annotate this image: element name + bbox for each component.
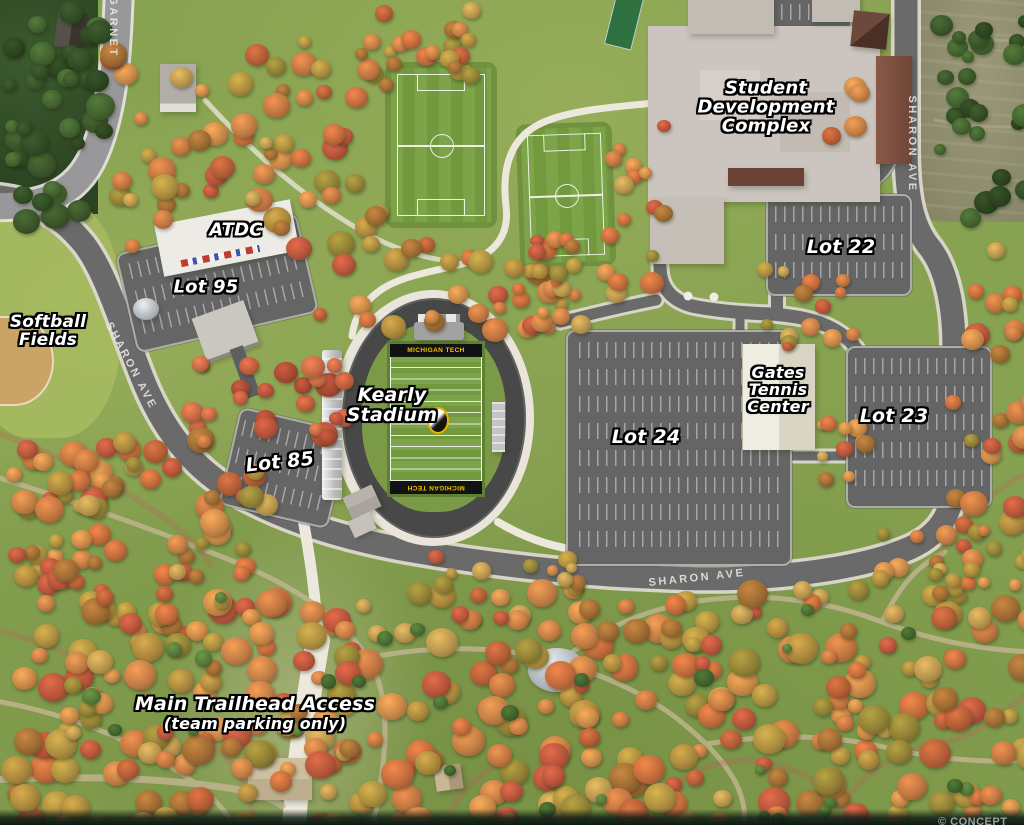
water-dome (133, 298, 159, 320)
tree (102, 479, 122, 498)
tree (501, 705, 519, 721)
label-lot-24[interactable]: Lot 24 (612, 428, 681, 448)
tree (813, 767, 843, 794)
tree (958, 68, 976, 85)
tree (425, 45, 441, 59)
tree (507, 610, 529, 630)
tree (301, 356, 325, 378)
tree (401, 30, 421, 49)
tree (564, 239, 580, 254)
road-label-garnet: GARNET (107, 0, 119, 58)
endzone-north: MICHIGAN TECH (390, 344, 482, 357)
label-student-development-complex[interactable]: Student Development Complex (697, 80, 834, 137)
tree (901, 627, 916, 641)
tree (169, 564, 186, 580)
label-softball-fields[interactable]: Softball Fields (10, 314, 86, 350)
tree (381, 759, 414, 789)
label-text: Lot 95 (174, 277, 239, 298)
tree (204, 490, 221, 505)
building-sdc-brown-strip (728, 168, 804, 186)
tree (428, 550, 443, 564)
tree (8, 547, 26, 563)
tree (297, 622, 328, 650)
tree (13, 209, 40, 234)
tree (504, 259, 524, 277)
label-lot-22[interactable]: Lot 22 (807, 238, 876, 258)
tree (3, 37, 26, 58)
tree (47, 471, 73, 495)
tree (320, 784, 338, 800)
tree (293, 651, 315, 671)
tree (574, 673, 589, 687)
tree (576, 707, 599, 728)
tree (527, 579, 558, 607)
tree (793, 581, 812, 599)
tree (960, 208, 982, 228)
tree (377, 631, 393, 646)
tree (2, 78, 18, 93)
tree (167, 535, 189, 555)
tree (737, 580, 768, 608)
tree (991, 595, 1020, 622)
tree (937, 70, 953, 85)
tree (538, 699, 554, 714)
tree (944, 649, 966, 669)
tree (316, 85, 332, 100)
tree (32, 193, 52, 212)
tree (962, 51, 975, 63)
tree (491, 589, 510, 606)
tree (71, 137, 85, 150)
tree (601, 227, 619, 244)
campus-map[interactable]: MICHIGAN TECH MICHIGAN TECH Student Deve… (0, 0, 1024, 825)
tree (757, 262, 773, 277)
parking-stall-row (855, 358, 983, 374)
tree (990, 345, 1010, 363)
tree (49, 534, 64, 547)
tree (782, 342, 792, 352)
tree (82, 688, 101, 705)
tree (377, 693, 407, 720)
tree (327, 231, 355, 256)
tree (231, 113, 258, 137)
tree (1005, 326, 1021, 341)
tree (657, 120, 671, 133)
tree (59, 1, 84, 24)
tree (952, 118, 971, 136)
tree (300, 601, 325, 624)
tree (433, 576, 453, 594)
tree (296, 395, 315, 412)
tree (80, 740, 101, 759)
tree (422, 671, 451, 698)
tree (140, 469, 162, 489)
tree (358, 781, 387, 808)
parking-stall-row (855, 470, 983, 486)
tree (960, 491, 988, 517)
tree (836, 274, 850, 287)
tree (296, 90, 313, 106)
tree (215, 592, 227, 603)
tree (1003, 496, 1024, 519)
tree (523, 559, 538, 573)
tree (694, 669, 714, 687)
tree (817, 451, 829, 462)
tree (605, 151, 622, 167)
tree (31, 648, 48, 663)
tree (155, 603, 179, 625)
tree (952, 31, 966, 44)
tree (195, 650, 213, 666)
label-atdc[interactable]: ATDC (209, 222, 262, 241)
tree (263, 93, 290, 118)
label-text: Lot 24 (612, 426, 681, 448)
tree (249, 622, 274, 645)
tree (472, 562, 492, 580)
tree (11, 490, 38, 514)
tree (448, 285, 468, 304)
tree (975, 22, 993, 39)
tree (755, 765, 765, 775)
tree (166, 642, 182, 657)
tree (963, 562, 980, 577)
tree (16, 121, 33, 136)
tree (266, 57, 286, 76)
tree (425, 310, 440, 324)
tree (345, 174, 365, 193)
tree (849, 84, 870, 103)
tree (286, 237, 312, 261)
tree (988, 186, 1011, 208)
tree (930, 15, 952, 36)
tree (321, 674, 336, 688)
tree (125, 239, 140, 253)
tree (566, 258, 582, 273)
tree (500, 781, 523, 803)
tree (969, 104, 988, 122)
tree (639, 167, 652, 179)
tree (1002, 297, 1018, 312)
tree (886, 740, 912, 764)
tree (794, 285, 813, 302)
parking-stall-row (855, 386, 983, 402)
label-gates-tennis-center[interactable]: Gates Tennis Center (747, 365, 809, 415)
attribution-text: © CONCEPT (938, 816, 1007, 825)
tree (319, 429, 337, 445)
tree (980, 786, 1002, 806)
tree (488, 286, 508, 304)
tree (195, 84, 209, 96)
label-kearly-stadium[interactable]: Kearly Stadium (347, 386, 437, 426)
planter (710, 293, 719, 302)
tree (538, 620, 561, 641)
tree (608, 273, 628, 292)
label-text: Lot 22 (807, 236, 876, 258)
tree (879, 637, 897, 654)
tree (547, 565, 559, 576)
tree (635, 690, 657, 710)
tree (88, 556, 103, 570)
tree (239, 486, 264, 509)
tree (182, 735, 214, 765)
tree (945, 573, 961, 588)
tree (991, 741, 1017, 765)
tree (813, 698, 833, 716)
tree (119, 613, 142, 634)
tree (365, 206, 387, 226)
tree (1, 756, 32, 784)
tree (596, 794, 608, 805)
tree (487, 744, 512, 767)
tree (961, 329, 984, 350)
tree (515, 638, 542, 663)
tree (64, 677, 82, 693)
tree (815, 299, 831, 314)
tree (192, 356, 209, 372)
tree (66, 726, 81, 740)
road-label-sharon-ave-north: SHARON AVE (906, 95, 918, 192)
tree (233, 391, 248, 405)
tree (53, 559, 79, 583)
tree (14, 565, 38, 587)
tree (352, 675, 366, 688)
tree (897, 773, 927, 800)
attribution-bar: © CONCEPT (0, 809, 1024, 825)
tree (168, 669, 194, 693)
tree (322, 187, 341, 205)
label-text: Lot 23 (860, 405, 929, 427)
tree (936, 525, 958, 545)
tree (356, 599, 372, 613)
parking-stall-row (579, 504, 779, 520)
tree (482, 318, 508, 342)
stadium-bleachers-east (492, 402, 505, 452)
label-text: Student Development Complex (697, 78, 834, 137)
tree (10, 784, 40, 811)
tree (60, 707, 79, 724)
tree (818, 472, 834, 487)
tree (359, 312, 376, 328)
tree (557, 572, 573, 587)
tree (654, 205, 673, 222)
tree (665, 595, 686, 615)
tree (264, 148, 278, 161)
tree (493, 611, 509, 626)
tree (253, 164, 275, 184)
tree (59, 118, 81, 138)
tree (753, 724, 786, 754)
tree (531, 264, 548, 280)
building-sdc-north-wing (688, 0, 774, 34)
tree (426, 628, 458, 657)
planter (684, 292, 693, 301)
tree (270, 771, 292, 791)
building-red-cabin (850, 10, 890, 50)
tree (335, 621, 355, 639)
tree (13, 186, 33, 205)
tree (914, 656, 942, 681)
tree (987, 242, 1006, 259)
tree (375, 5, 393, 22)
tree (14, 728, 44, 755)
tree (961, 576, 976, 590)
tree (71, 530, 92, 549)
tree (461, 67, 480, 84)
tree (363, 34, 381, 50)
tree (415, 751, 441, 775)
tree (189, 569, 205, 583)
tree (170, 67, 193, 88)
tree (221, 637, 252, 666)
tree (968, 607, 992, 629)
tree (34, 624, 59, 647)
parking-stall-row (579, 477, 779, 493)
tree (872, 570, 890, 586)
tree (367, 732, 383, 747)
tree (156, 586, 173, 602)
tree (381, 315, 407, 338)
label-text: Softball Fields (10, 312, 86, 350)
tree (95, 123, 113, 139)
tree (835, 287, 846, 297)
label-lot-23[interactable]: Lot 23 (860, 407, 929, 427)
tree (67, 48, 92, 71)
label-text: Kearly Stadium (347, 384, 437, 426)
tree (355, 48, 368, 60)
tree (983, 438, 1001, 454)
parking-stall-row (579, 531, 779, 547)
tree (512, 283, 525, 295)
tree (947, 779, 963, 794)
tree (339, 739, 360, 758)
tree (612, 712, 629, 727)
tree (549, 265, 568, 282)
tree (579, 599, 600, 619)
tree (256, 590, 286, 618)
tree (552, 308, 570, 325)
tree (238, 784, 257, 802)
tree (201, 407, 217, 422)
tree (984, 708, 1005, 727)
parking-stall-row (579, 450, 779, 466)
tree (28, 16, 47, 33)
tree (313, 308, 327, 321)
parking-stall-row (775, 206, 903, 222)
tree (362, 236, 380, 252)
tree (452, 718, 472, 736)
tree (623, 619, 649, 643)
tree (581, 748, 601, 767)
tree (840, 623, 857, 638)
label-text: ATDC (209, 220, 262, 241)
tree (686, 770, 704, 786)
tree (27, 152, 56, 179)
tree (274, 362, 297, 384)
tree (245, 44, 269, 66)
tree (117, 759, 139, 779)
tree (858, 705, 889, 734)
tree (188, 130, 211, 151)
tree (247, 656, 277, 683)
tree (670, 744, 698, 770)
tree (579, 728, 599, 747)
tree (720, 730, 742, 750)
label-main-trailhead-access[interactable]: Main Trailhead Access(team parking only) (135, 695, 375, 733)
tree (685, 637, 701, 652)
tree (701, 635, 722, 655)
tree (254, 417, 278, 439)
tree (888, 713, 920, 742)
tree (77, 495, 100, 516)
tree (197, 435, 211, 448)
tree (729, 648, 760, 677)
label-lot-95[interactable]: Lot 95 (174, 279, 239, 298)
tree (305, 751, 336, 779)
tree (299, 191, 317, 208)
tree (162, 458, 183, 477)
tree (846, 328, 860, 341)
tree (35, 496, 65, 523)
tree (934, 144, 946, 155)
tree (603, 654, 623, 672)
tree (969, 126, 985, 141)
label-text: Main Trailhead Access (135, 693, 375, 715)
tree (323, 124, 346, 145)
tree (986, 541, 1002, 556)
tree (259, 137, 273, 150)
tree (51, 757, 79, 783)
tree (858, 750, 880, 770)
tree (42, 90, 62, 109)
tree (646, 250, 659, 262)
tree (12, 667, 37, 690)
tree (945, 395, 961, 410)
tree (444, 765, 456, 777)
tree (327, 358, 343, 372)
tree (848, 580, 869, 600)
tree (181, 402, 203, 422)
label-subtext: (team parking only) (135, 716, 375, 733)
tree (614, 176, 634, 194)
label-text: Gates Tennis Center (747, 363, 809, 416)
tree (468, 250, 493, 273)
tree (151, 174, 179, 199)
tree (126, 457, 142, 471)
tree (838, 422, 852, 435)
tree (273, 220, 290, 236)
tree (462, 2, 481, 19)
tree (768, 768, 789, 787)
tree (752, 684, 777, 707)
tree (153, 210, 174, 229)
tree (856, 435, 875, 453)
tree (571, 315, 592, 334)
tree (823, 329, 842, 346)
tree (379, 78, 394, 92)
tree (1003, 44, 1024, 65)
endzone-south: MICHIGAN TECH (390, 481, 482, 494)
tree (542, 765, 565, 786)
tree (633, 755, 665, 785)
